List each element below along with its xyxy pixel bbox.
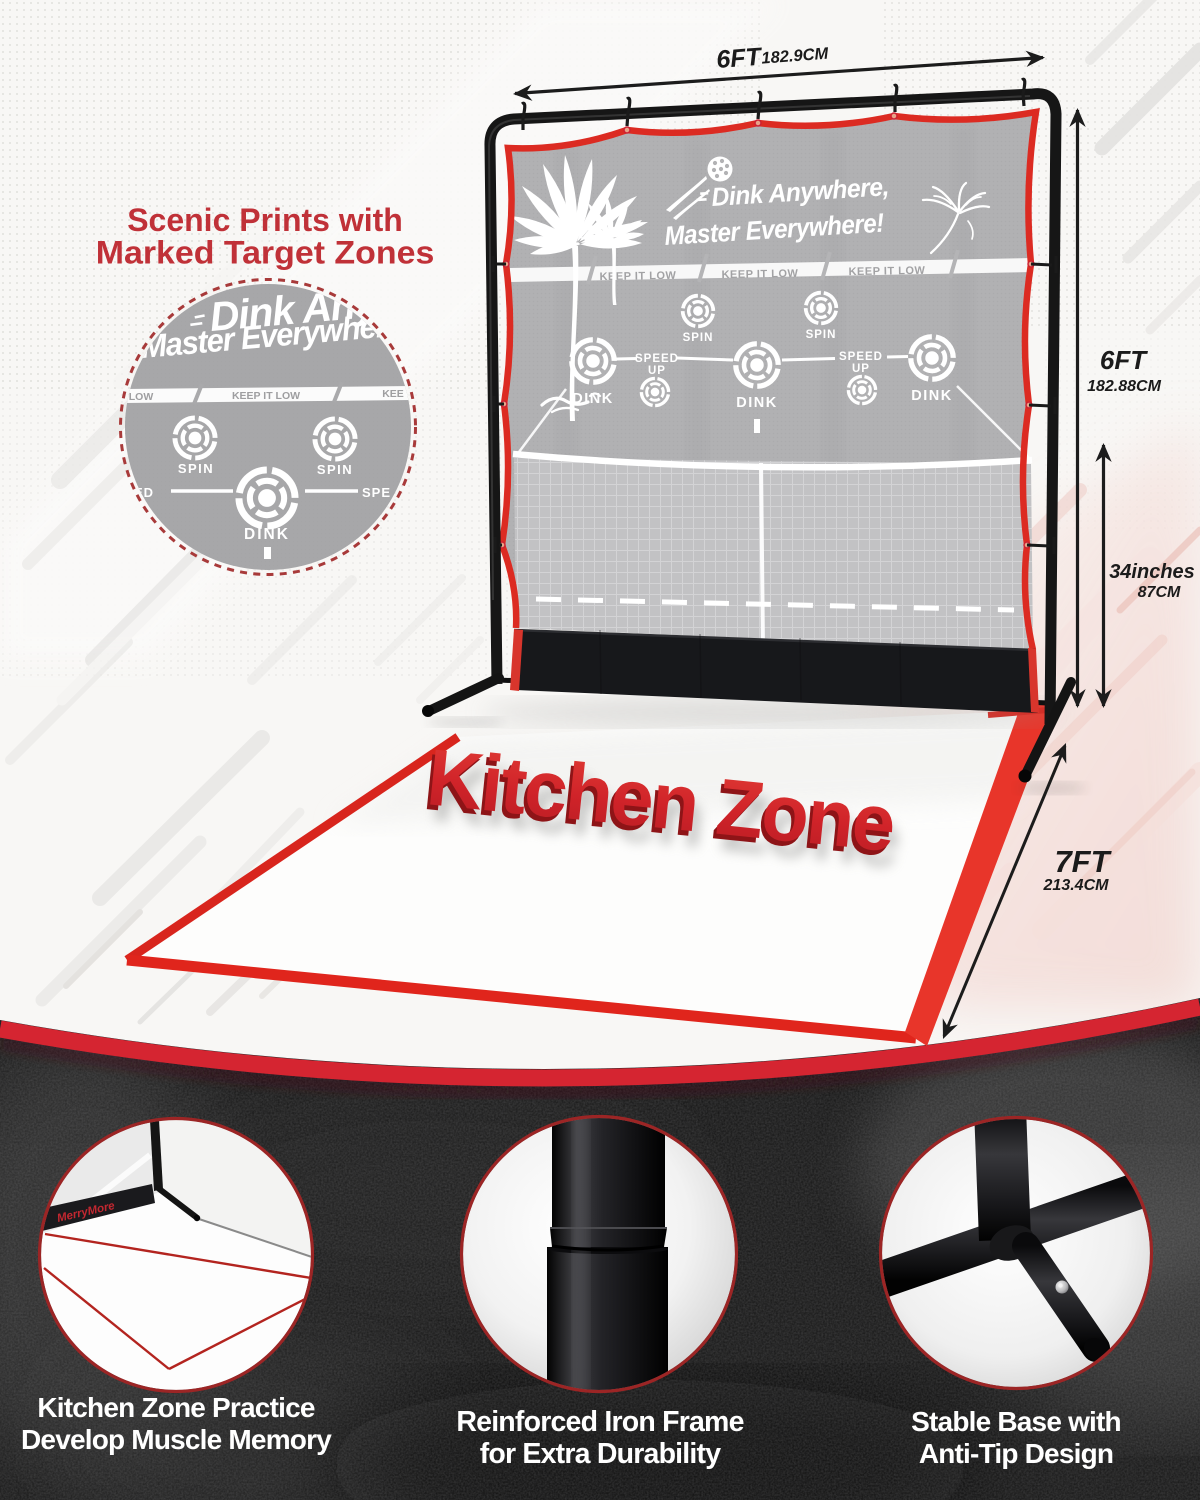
svg-text:KEEP IT LOW: KEEP IT LOW [721,268,798,281]
svg-text:Stable Base with: Stable Base with [911,1406,1121,1437]
svg-text:Anti-Tip Design: Anti-Tip Design [919,1438,1113,1469]
svg-text:Develop Muscle Memory: Develop Muscle Memory [21,1424,332,1455]
svg-text:34inches: 34inches [1109,561,1195,583]
svg-text:213.4CM: 213.4CM [1043,877,1110,894]
svg-text:DINK: DINK [911,388,952,404]
svg-text:6FT: 6FT [715,43,764,74]
svg-text:LOW: LOW [129,391,154,403]
svg-text:SPEED: SPEED [839,351,883,363]
svg-text:KEEP IT LOW: KEEP IT LOW [232,390,300,402]
svg-text:SPIN: SPIN [683,332,714,344]
svg-text:SPEED: SPEED [635,353,679,365]
svg-text:KEEP IT LOW: KEEP IT LOW [599,270,676,283]
svg-text:SPIN: SPIN [317,462,353,477]
svg-text:6FT: 6FT [1100,345,1148,375]
svg-text:DINK: DINK [244,526,290,543]
svg-text:for Extra Durability: for Extra Durability [480,1438,722,1470]
svg-text:Marked Target Zones: Marked Target Zones [96,234,435,270]
svg-text:SPIN: SPIN [178,461,214,476]
svg-text:DINK: DINK [736,395,777,411]
svg-text:87CM: 87CM [1138,584,1181,601]
svg-text:SPIN: SPIN [806,329,837,341]
svg-text:Reinforced Iron Frame: Reinforced Iron Frame [456,1406,743,1438]
svg-text:182.88CM: 182.88CM [1087,378,1161,395]
svg-text:KEE: KEE [382,388,404,400]
svg-text:DINK: DINK [572,391,613,407]
svg-text:KEEP IT LOW: KEEP IT LOW [848,265,925,278]
svg-text:SPE: SPE [362,485,391,500]
svg-text:7FT: 7FT [1054,844,1112,879]
svg-text:UP: UP [648,365,666,377]
svg-text:Kitchen Zone Practice: Kitchen Zone Practice [37,1392,315,1423]
svg-text:Scenic Prints with: Scenic Prints with [127,202,403,238]
svg-text:UP: UP [852,363,870,375]
